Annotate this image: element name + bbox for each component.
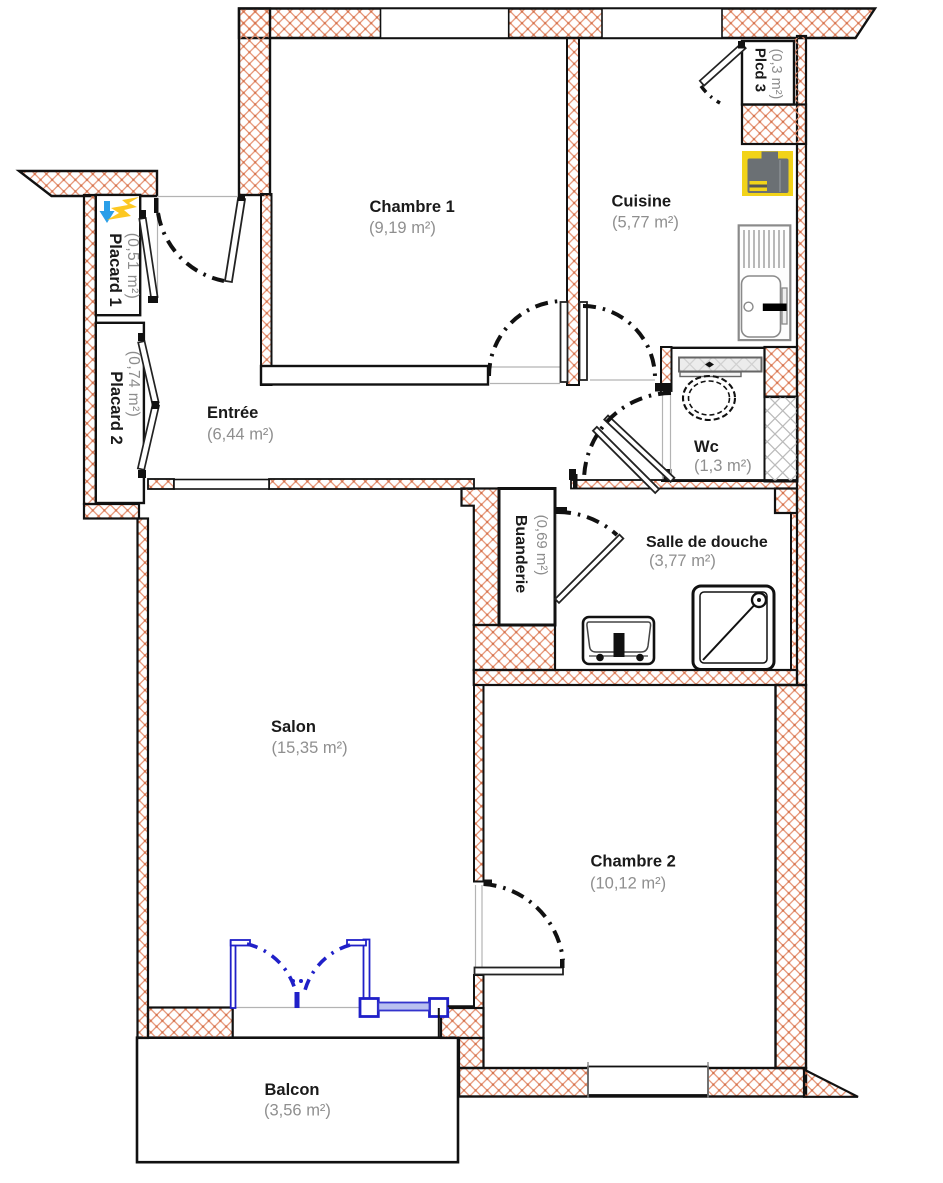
svg-text:Entrée: Entrée (207, 404, 258, 422)
svg-text:(9,19 m²): (9,19 m²) (369, 219, 436, 237)
svg-text:Placard 2: Placard 2 (107, 371, 125, 444)
svg-text:(15,35 m²): (15,35 m²) (272, 739, 348, 757)
svg-text:(6,44 m²): (6,44 m²) (207, 426, 274, 444)
svg-text:Chambre 2: Chambre 2 (591, 853, 676, 871)
svg-text:(3,77 m²): (3,77 m²) (649, 552, 716, 570)
svg-text:Salon: Salon (271, 718, 316, 736)
svg-text:Cuisine: Cuisine (612, 193, 672, 211)
svg-text:Chambre 1: Chambre 1 (370, 198, 455, 216)
svg-text:(10,12 m²): (10,12 m²) (590, 875, 666, 893)
svg-text:Wc: Wc (694, 438, 719, 456)
svg-text:Salle de douche: Salle de douche (646, 534, 768, 551)
svg-text:(0,69 m²): (0,69 m²) (533, 515, 550, 576)
svg-text:(0,3 m²): (0,3 m²) (768, 49, 784, 100)
svg-text:(3,56 m²): (3,56 m²) (264, 1102, 331, 1120)
svg-text:(0,74 m²): (0,74 m²) (125, 351, 142, 417)
svg-text:Plcd 3: Plcd 3 (752, 48, 769, 92)
svg-text:Balcon: Balcon (265, 1081, 320, 1099)
svg-text:(5,77 m²): (5,77 m²) (612, 214, 679, 232)
svg-text:Buanderie: Buanderie (512, 515, 529, 593)
svg-text:(0,51 m²): (0,51 m²) (124, 233, 141, 299)
svg-text:Placard 1: Placard 1 (106, 233, 124, 306)
svg-text:(1,3 m²): (1,3 m²) (694, 457, 752, 475)
